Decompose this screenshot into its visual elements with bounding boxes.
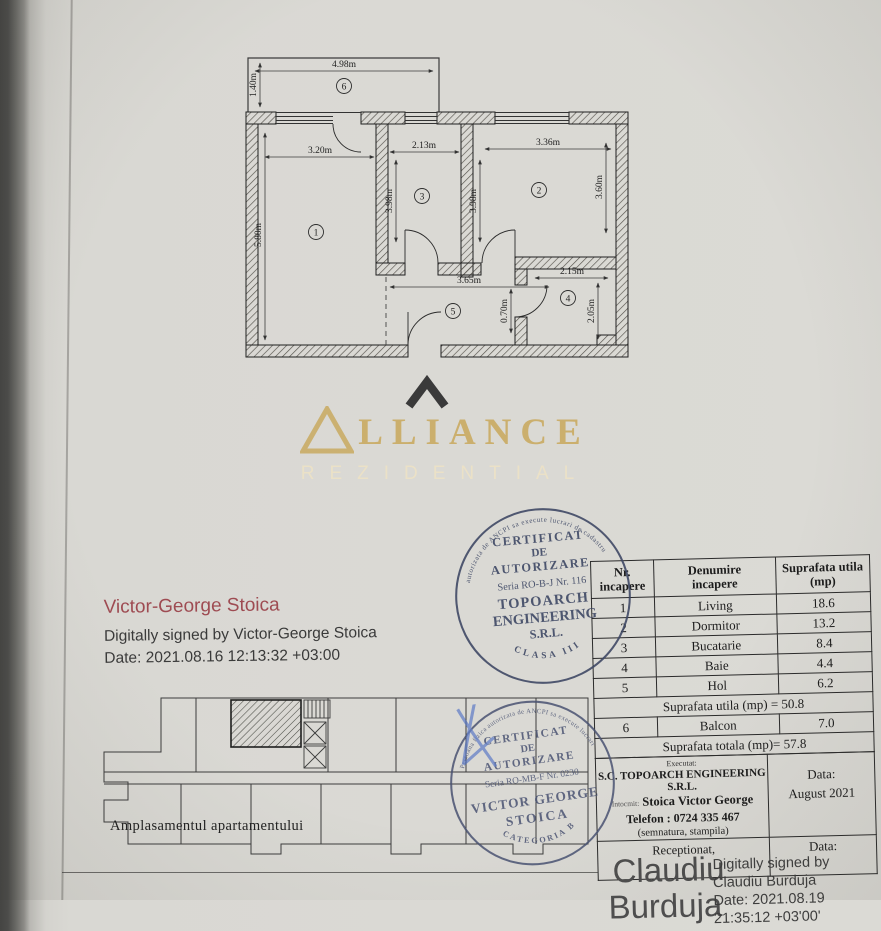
col-header-area: Suprafata utila (mp) bbox=[775, 555, 870, 594]
logo-subtitle: REZIDENTIAL bbox=[270, 463, 620, 485]
room-number: 6 bbox=[342, 83, 347, 93]
signature-last-name: Burduja bbox=[605, 886, 726, 925]
cell-area: 8.4 bbox=[777, 632, 872, 654]
signer-line2: Date: 2021.08.16 12:13:32 +03:00 bbox=[104, 645, 377, 671]
north-arrow-icon bbox=[409, 382, 445, 406]
stamp1-line: AUTORIZARE bbox=[490, 555, 590, 578]
dim-label: 3.60m bbox=[595, 174, 605, 199]
svg-text:CLASA III: CLASA III bbox=[512, 639, 585, 664]
col-header-name: Denumire incapere bbox=[653, 557, 776, 597]
topoarch-round-stamp: autorizata de ANCPI sa execute lucrari d… bbox=[442, 497, 643, 695]
stamp1-class-text: CLASA III bbox=[512, 639, 585, 664]
floor-plan: 4.98m 1.40m 3.20m 2.13m 3.36m 5.80m 3.98… bbox=[233, 45, 645, 417]
windows bbox=[276, 113, 569, 124]
stamp2-line: DE bbox=[520, 742, 536, 755]
dimension-lines bbox=[255, 63, 611, 340]
reception-signature: Claudiu Burduja bbox=[612, 851, 726, 925]
stamp1-line: S.R.L. bbox=[529, 625, 563, 642]
cell-area: 6.2 bbox=[778, 672, 873, 694]
dim-label: 3.98m bbox=[385, 188, 395, 213]
cell-area: 7.0 bbox=[779, 712, 874, 734]
reception-row: Receptionat, Claudiu Burduja Data: Digit… bbox=[597, 835, 877, 881]
dim-label: 4.98m bbox=[332, 60, 357, 70]
digital-signature-block: Victor-George Stoica Digitally signed by… bbox=[103, 593, 377, 671]
dim-label: 3.98m bbox=[469, 188, 479, 213]
stoica-round-stamp: Persoana fizica autorizata de ANCPI sa e… bbox=[434, 686, 631, 881]
room-number: 5 bbox=[451, 308, 456, 318]
dimension-labels: 4.98m 1.40m 3.20m 2.13m 3.36m 5.80m 3.98… bbox=[249, 60, 605, 323]
stairs-elevators bbox=[304, 700, 330, 768]
logo-brand-text: LLIANCE bbox=[358, 411, 590, 454]
room-number: 4 bbox=[566, 295, 571, 305]
dim-label: 2.13m bbox=[412, 141, 437, 151]
cell-area: 13.2 bbox=[776, 612, 871, 634]
reception-digital-signature: Digitally signed by Claudiu Burduja Date… bbox=[712, 852, 881, 929]
alliance-triangle-icon bbox=[300, 406, 354, 454]
signature-table: Executat: S.C. TOPOARCH ENGINEERING S.R.… bbox=[595, 751, 878, 881]
dim-label: 2.05m bbox=[587, 298, 597, 323]
date-value: August 2021 bbox=[770, 784, 874, 803]
executat-row: Executat: S.C. TOPOARCH ENGINEERING S.R.… bbox=[595, 752, 876, 842]
room-number: 1 bbox=[314, 229, 319, 239]
alliance-logo: LLIANCE REZIDENTIAL bbox=[270, 406, 620, 485]
dim-label: 2.15m bbox=[560, 267, 585, 277]
dim-label: 5.80m bbox=[254, 222, 264, 247]
dim-label: 1.40m bbox=[249, 72, 259, 97]
stamp1-line: DE bbox=[531, 546, 548, 559]
ds-line: 21:35:12 +03'00' bbox=[714, 906, 881, 929]
room-number: 2 bbox=[537, 187, 542, 197]
header-line: incapere bbox=[654, 575, 775, 592]
site-plan-caption: Amplasamentul apartamentului bbox=[110, 818, 304, 835]
highlighted-apartment bbox=[231, 700, 301, 747]
dim-label: 0.70m bbox=[500, 298, 510, 323]
dim-label: 3.65m bbox=[457, 276, 482, 286]
stamp1-svg: autorizata de ANCPI sa execute lucrari d… bbox=[442, 497, 643, 695]
cell-area: 4.4 bbox=[777, 652, 872, 674]
dim-label: 3.36m bbox=[536, 138, 561, 148]
header-line: Suprafata utila bbox=[776, 559, 870, 576]
author-name: Stoica Victor George bbox=[642, 792, 753, 809]
date-cell: Data: August 2021 bbox=[767, 752, 876, 838]
signer-name: Victor-George Stoica bbox=[103, 593, 376, 619]
room-number: 3 bbox=[420, 193, 425, 203]
signature-first-name: Claudiu bbox=[612, 851, 725, 889]
cell-area: 18.6 bbox=[776, 592, 871, 614]
company-name: S.C. TOPOARCH ENGINEERING S.R.L. bbox=[597, 767, 767, 795]
stamp2-svg: Persoana fizica autorizata de ANCPI sa e… bbox=[434, 686, 631, 881]
reception-date-cell: Data: Digitally signed by Claudiu Burduj… bbox=[769, 835, 877, 877]
frame-bottom-line bbox=[62, 872, 598, 873]
dim-label: 3.20m bbox=[308, 146, 333, 156]
header-line: (mp) bbox=[776, 573, 870, 590]
date-label: Data: bbox=[769, 765, 873, 784]
